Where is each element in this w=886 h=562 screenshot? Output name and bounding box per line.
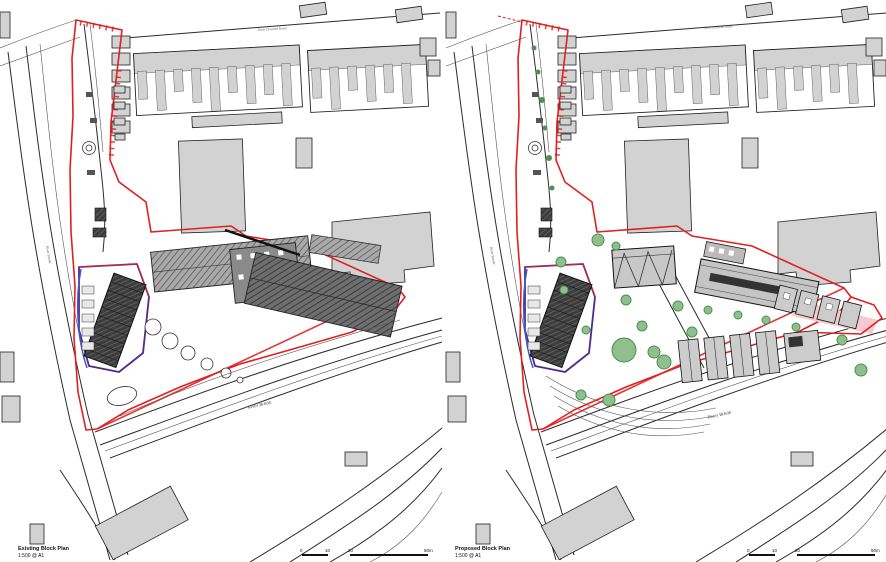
- scale-tick: 10: [325, 548, 330, 553]
- scale-tick: 0: [747, 548, 750, 553]
- scale-tick: 20: [348, 548, 353, 553]
- plan-title-proposed: Proposed Block Plan 1:500 @ A1: [455, 546, 575, 559]
- rock-channel-road-label: Rock Channel Road: [258, 26, 287, 32]
- river-left-label: River Brede: [45, 245, 52, 263]
- block-plan-sheet: Rock Channel Road River Brede River Bred…: [0, 0, 886, 562]
- scale-tick: 50m: [424, 548, 433, 553]
- proposed-title-text: Proposed Block Plan: [455, 546, 575, 553]
- river-brede-label: River Brede: [707, 410, 732, 420]
- existing-scale-text: 1:500 @ A1: [18, 553, 138, 559]
- river-brede-label: River Brede: [247, 400, 272, 410]
- scale-tick: 50m: [871, 548, 880, 553]
- scale-tick: 10: [772, 548, 777, 553]
- rock-channel-road-label: Rock Channel Road: [704, 24, 733, 30]
- scale-bar-existing: 0 10 20 50m: [300, 548, 435, 558]
- river-left-label: River Brede: [489, 246, 496, 264]
- scale-tick: 0: [300, 548, 303, 553]
- existing-corridor-trees: [105, 319, 400, 416]
- proposed-scale-text: 1:500 @ A1: [455, 553, 575, 559]
- existing-title-text: Existing Block Plan: [18, 546, 138, 553]
- existing-warehouses: [151, 230, 403, 337]
- plan-title-existing: Existing Block Plan 1:500 @ A1: [18, 546, 138, 559]
- scale-bar-proposed: 0 10 20 50m: [747, 548, 882, 558]
- scale-tick: 20: [795, 548, 800, 553]
- plans-drawing: Rock Channel Road River Brede River Bred…: [0, 0, 886, 562]
